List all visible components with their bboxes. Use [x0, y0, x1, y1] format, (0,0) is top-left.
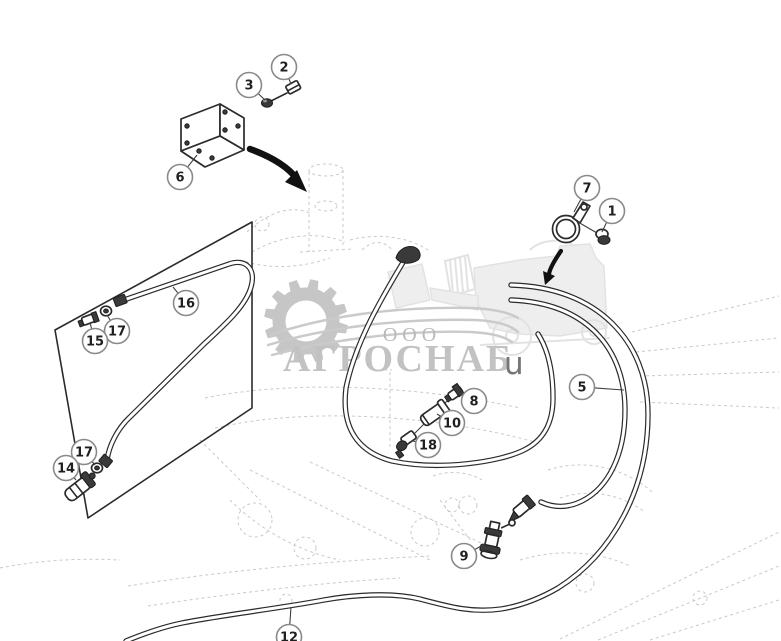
callout-6-2: 6 — [168, 155, 198, 190]
fitting-15 — [77, 312, 99, 328]
callout-12-15: 12 — [277, 607, 302, 641]
callout-number: 15 — [86, 335, 104, 350]
callout-18-11: 18 — [413, 433, 441, 458]
hose-end-fitting — [503, 495, 536, 526]
bolt-2 — [269, 80, 301, 102]
callout-1-4: 1 — [600, 199, 625, 233]
hose-clamp-7 — [553, 202, 598, 243]
callout-number: 17 — [75, 446, 93, 461]
callout-17-6: 17 — [105, 315, 130, 344]
nut-17-upper — [101, 306, 112, 316]
callout-number: 8 — [469, 395, 478, 410]
callout-leader-line — [290, 607, 291, 625]
callout-number: 7 — [582, 182, 591, 197]
callout-number: 6 — [175, 171, 184, 186]
callout-leader-line — [173, 287, 178, 293]
install-direction-arrow — [250, 149, 307, 192]
callout-number: 10 — [443, 417, 461, 432]
watermark-company-name: АГРОСНАБ — [283, 338, 513, 380]
callout-number: 5 — [577, 381, 586, 396]
fitting-9 — [478, 514, 515, 562]
callout-number: 2 — [279, 61, 288, 76]
callout-number: 9 — [459, 550, 468, 565]
callout-leader-line — [258, 94, 265, 101]
watermark-letter: u — [504, 346, 524, 382]
nut-1 — [596, 229, 610, 244]
callout-16-5: 16 — [173, 287, 199, 316]
callout-2-0: 2 — [272, 55, 297, 85]
callout-3-1: 3 — [237, 73, 266, 101]
nut-17-lower — [92, 463, 103, 473]
mounting-bracket — [181, 104, 244, 167]
callout-number: 3 — [244, 79, 253, 94]
callout-14-13: 14 — [54, 456, 79, 481]
callout-leader-line — [595, 388, 625, 390]
callout-number: 12 — [280, 631, 298, 641]
callout-number: 1 — [607, 205, 616, 220]
callout-15-7: 15 — [83, 323, 108, 354]
callout-number: 14 — [57, 462, 75, 477]
nut-3 — [262, 99, 273, 107]
callout-number: 16 — [177, 297, 195, 312]
parts-diagram: ООО АГРОСНАБ u — [0, 0, 781, 641]
callout-5-8: 5 — [570, 375, 625, 400]
callout-number: 18 — [419, 439, 437, 454]
callout-leader-line — [90, 323, 92, 329]
callout-number: 17 — [108, 325, 126, 340]
